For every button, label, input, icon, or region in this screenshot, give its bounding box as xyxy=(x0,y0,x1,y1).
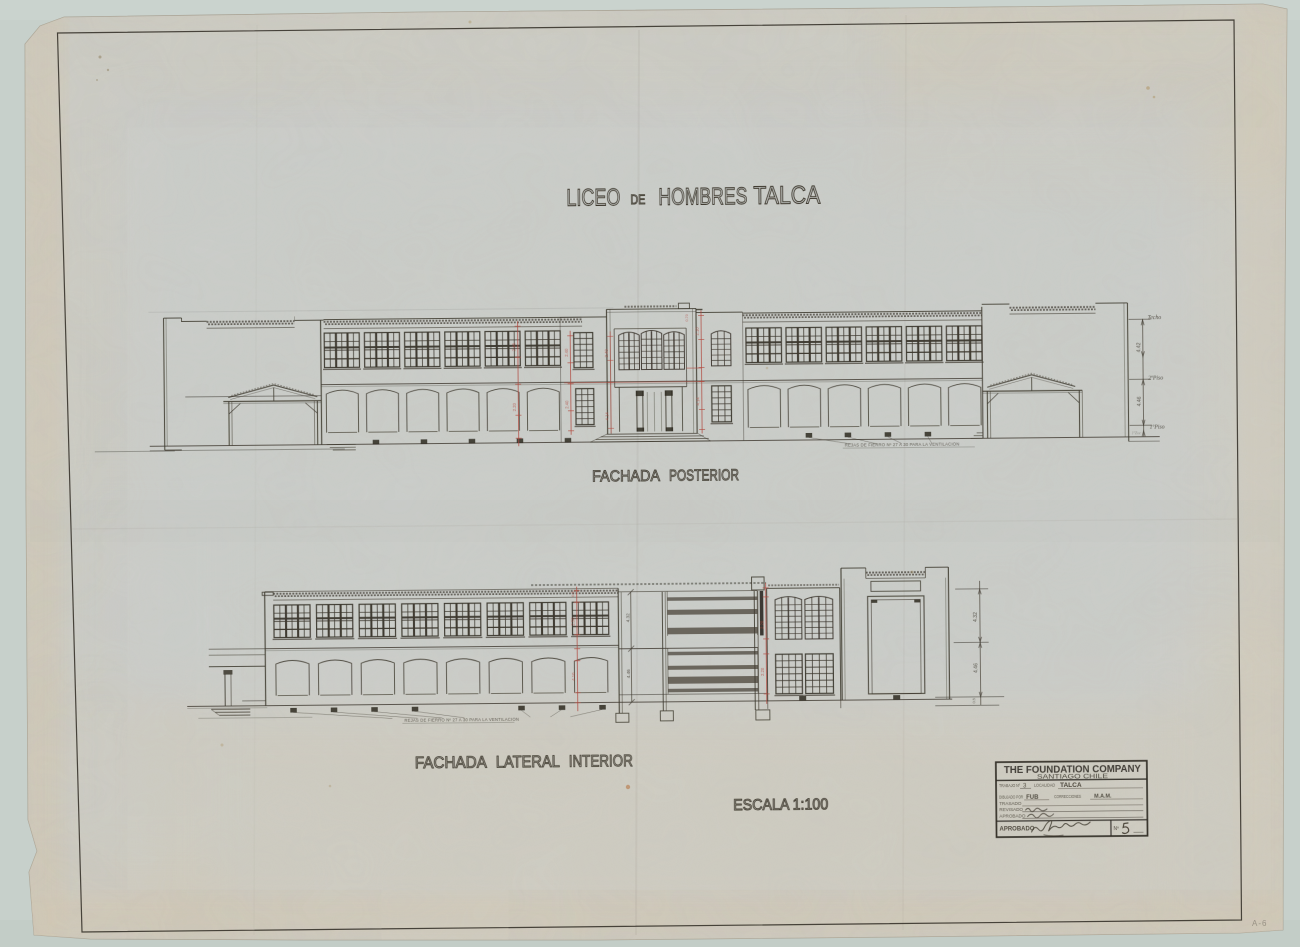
svg-text:0.5: 0.5 xyxy=(571,591,575,596)
svg-text:2.50: 2.50 xyxy=(570,617,575,626)
svg-text:FACHADA: FACHADA xyxy=(415,754,487,773)
svg-text:2.10: 2.10 xyxy=(695,327,700,336)
svg-text:ESCALA 1:100: ESCALA 1:100 xyxy=(733,796,828,814)
svg-text:TRABAJO Nº: TRABAJO Nº xyxy=(999,783,1020,788)
svg-text:4.14: 4.14 xyxy=(604,412,609,421)
svg-text:2.20: 2.20 xyxy=(760,667,765,676)
svg-text:4.42: 4.42 xyxy=(1136,342,1142,352)
svg-text:A-6: A-6 xyxy=(1252,919,1267,928)
svg-text:INTERIOR: INTERIOR xyxy=(569,752,633,771)
svg-text:HOMBRES: HOMBRES xyxy=(658,183,747,211)
svg-text:LATERAL: LATERAL xyxy=(496,753,560,772)
svg-text:1ºZoc: 1ºZoc xyxy=(1132,430,1142,435)
svg-text:2.40: 2.40 xyxy=(564,348,569,357)
svg-text:2ºPiso: 2ºPiso xyxy=(1148,376,1163,382)
svg-text:Nº: Nº xyxy=(1113,826,1119,832)
svg-text:2.46: 2.46 xyxy=(511,342,516,351)
svg-text:POSTERIOR: POSTERIOR xyxy=(669,467,739,485)
svg-text:DIBUJADO POR: DIBUJADO POR xyxy=(999,794,1024,799)
svg-text:LOCALIDAD: LOCALIDAD xyxy=(1034,783,1056,788)
svg-text:4.32: 4.32 xyxy=(973,612,979,622)
svg-text:4.46: 4.46 xyxy=(626,669,631,678)
svg-text:Techo: Techo xyxy=(1148,315,1162,321)
svg-text:0.70: 0.70 xyxy=(685,314,689,321)
svg-text:TRASADO: TRASADO xyxy=(999,801,1022,806)
svg-text:1ºPiso: 1ºPiso xyxy=(1150,425,1165,431)
svg-text:4.14: 4.14 xyxy=(695,397,700,406)
svg-text:2.40: 2.40 xyxy=(604,349,609,358)
svg-text:4.46: 4.46 xyxy=(1137,396,1143,406)
svg-text:4.46: 4.46 xyxy=(973,663,979,673)
svg-text:4.32: 4.32 xyxy=(625,613,630,622)
svg-text:REVISADO: REVISADO xyxy=(999,807,1023,812)
svg-text:TALCA: TALCA xyxy=(753,181,821,210)
svg-text:APROBADO: APROBADO xyxy=(999,826,1034,832)
svg-text:4.10: 4.10 xyxy=(571,672,576,681)
svg-text:APROBADO: APROBADO xyxy=(999,813,1026,818)
svg-text:LICEO: LICEO xyxy=(566,184,620,212)
svg-text:CORRECCIONES: CORRECCIONES xyxy=(1054,794,1081,799)
svg-text:2.20: 2.20 xyxy=(759,620,764,629)
svg-text:DE: DE xyxy=(630,191,645,207)
svg-text:2.40: 2.40 xyxy=(564,400,569,409)
svg-text:0.5: 0.5 xyxy=(972,698,976,703)
svg-text:FACHADA: FACHADA xyxy=(592,468,660,486)
svg-text:2.20: 2.20 xyxy=(512,402,517,411)
